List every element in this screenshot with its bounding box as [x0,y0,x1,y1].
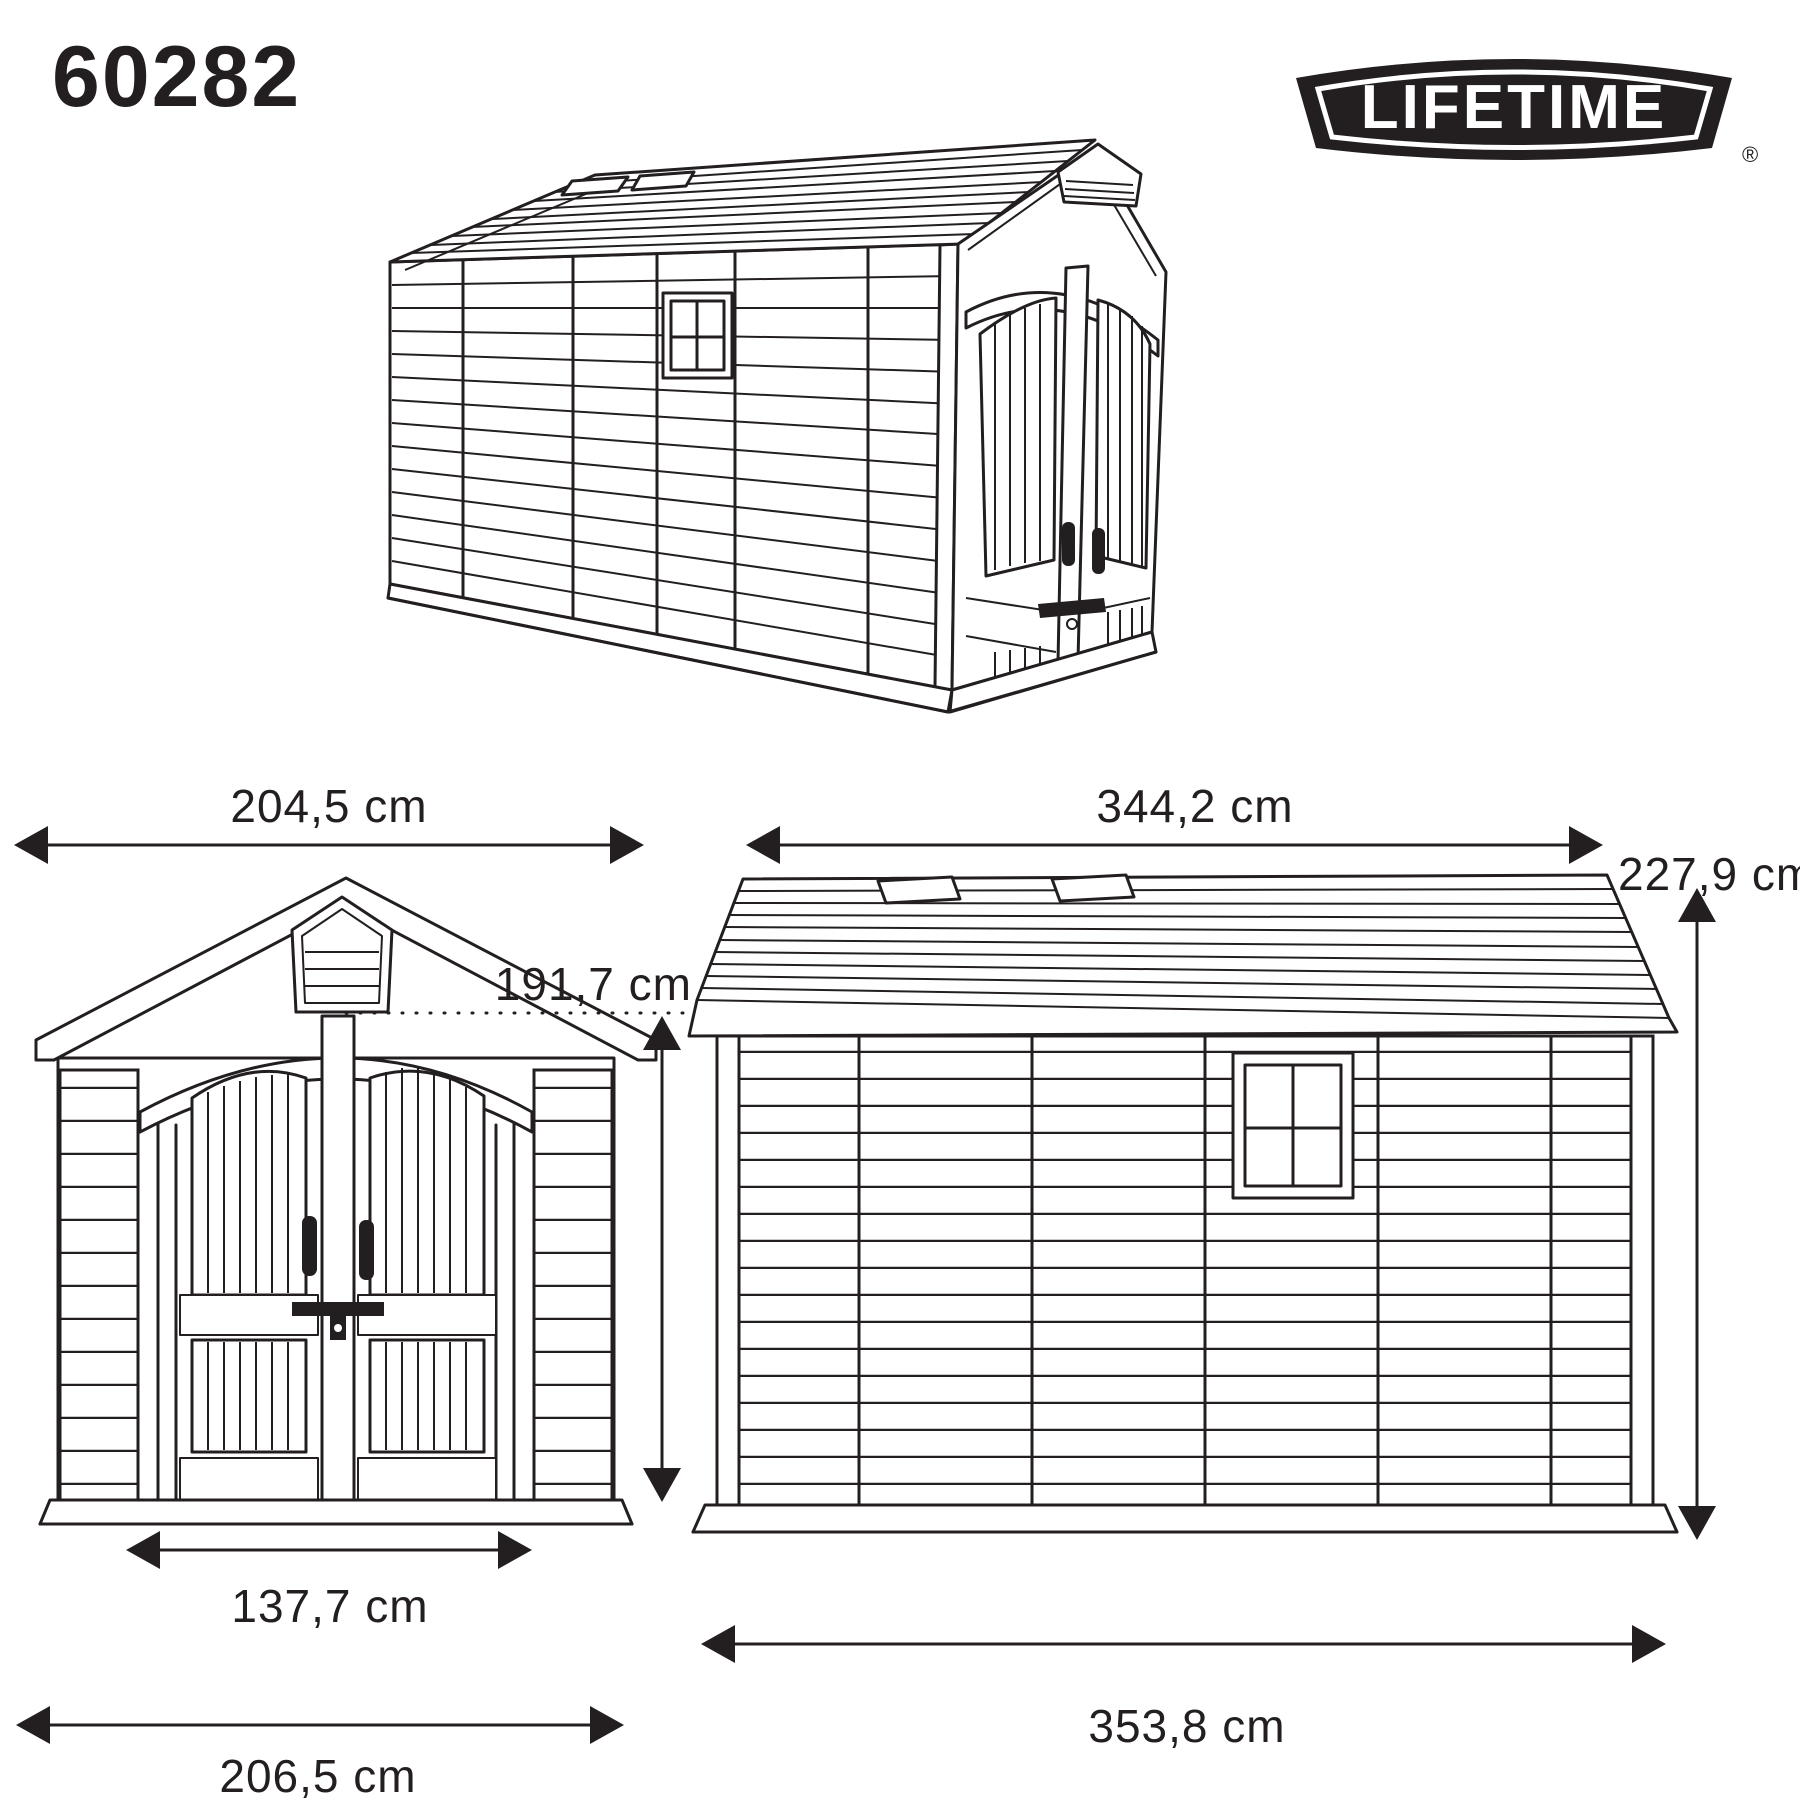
dim-label-front-width-top: 204,5 cm [230,780,427,832]
side-window [1233,1053,1353,1198]
side-corner-trim-left [717,1036,739,1505]
dim-label-total-height: 227,9 cm [1618,848,1800,900]
dim-label-door-width: 137,7 cm [231,1580,428,1632]
front-latch-keyhole [334,1324,342,1332]
front-right-siding [534,1070,612,1500]
front-door-handle-right [359,1220,374,1280]
dimension-diagram: 204,5 cm 344,2 cm 227,9 cm [0,0,1800,1800]
side-base [693,1505,1677,1532]
iso-latch-keyhole [1067,619,1077,629]
iso-right-door-window [1096,300,1150,568]
dim-front-width-top: 204,5 cm [14,780,644,864]
side-wall [717,1036,1653,1505]
side-corner-trim-right [1631,1036,1653,1505]
dim-side-length-base: 353,8 cm [701,1625,1666,1752]
iso-left-door-window [980,298,1056,576]
front-door-center-post [322,1016,354,1500]
side-elevation [689,875,1677,1532]
front-left-siding [60,1070,138,1500]
page: 60282 LIFETIME ® [0,0,1800,1800]
side-roof [689,875,1677,1036]
front-base [40,1500,632,1524]
iso-view [388,140,1166,712]
dim-front-width-base: 206,5 cm [16,1706,624,1800]
dim-label-front-width-base: 206,5 cm [219,1750,416,1800]
dim-label-front-height: 191,7 cm [495,958,692,1010]
front-door-latch [292,1302,384,1316]
dim-side-length-roof: 344,2 cm [746,780,1603,864]
iso-door-handle-left [1062,522,1075,566]
iso-side-window [663,293,732,378]
front-left-door-window [192,1071,306,1295]
dim-label-side-length-base: 353,8 cm [1088,1700,1285,1752]
dim-door-width: 137,7 cm [126,1531,532,1632]
front-door-handle-left [302,1216,317,1276]
iso-door-handle-right [1092,528,1105,574]
front-right-door-window [370,1068,484,1295]
dim-label-side-length-roof: 344,2 cm [1096,780,1293,832]
